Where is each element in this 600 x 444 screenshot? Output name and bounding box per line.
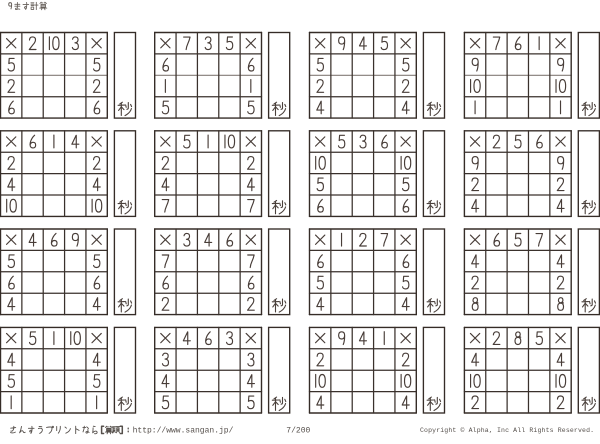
svg-text:7/200: 7/200 — [286, 426, 310, 435]
svg-text:http://www.sangan.jp/: http://www.sangan.jp/ — [133, 426, 234, 435]
svg-text:Copyright © Alpha, Inc All Rig: Copyright © Alpha, Inc All Rights Reserv… — [420, 426, 594, 434]
